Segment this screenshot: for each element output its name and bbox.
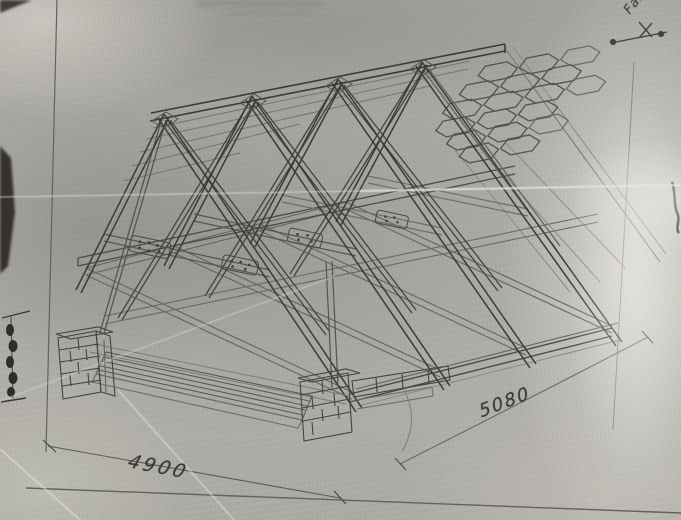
- pencil-drawing: [0, 0, 681, 520]
- left-edge-dimension-marks: [1, 311, 30, 402]
- floor-planks: [90, 344, 350, 428]
- brick-pier-left: [56, 327, 115, 399]
- diagonal-braces: [100, 64, 560, 335]
- paper-creases: [0, 185, 681, 520]
- fall-direction-marker: [611, 22, 667, 44]
- photo-of-roof-truss-drawing: 4900 5080 Fall: [0, 0, 681, 520]
- paper-shadow-edges: [0, 0, 32, 274]
- faint-handwriting-smudge: [198, 2, 322, 15]
- right-edge-mark: [672, 182, 679, 233]
- truss-rafters: [76, 62, 622, 412]
